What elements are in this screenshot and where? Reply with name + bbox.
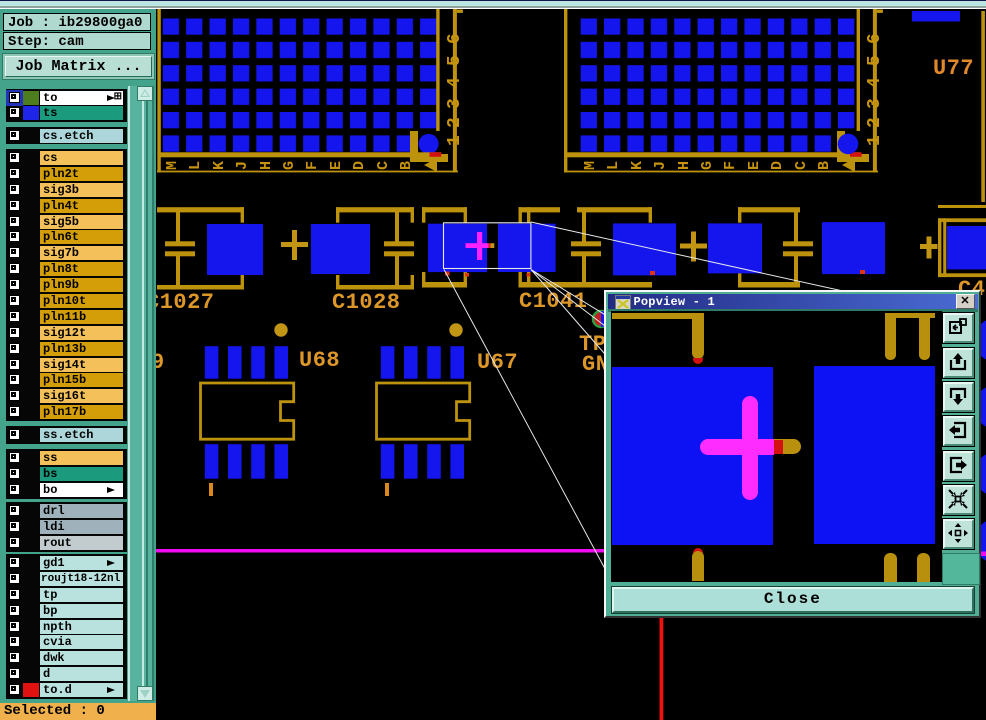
svg-text:5: 5 xyxy=(865,55,885,66)
svg-text:C: C xyxy=(793,161,810,170)
svg-text:H: H xyxy=(676,161,693,170)
svg-text:G: G xyxy=(699,161,716,170)
svg-text:3: 3 xyxy=(865,98,885,109)
svg-text:K: K xyxy=(211,161,228,170)
svg-text:U67: U67 xyxy=(477,350,518,375)
svg-text:L: L xyxy=(605,161,622,170)
svg-text:M: M xyxy=(582,161,599,170)
svg-text:2: 2 xyxy=(865,117,885,128)
svg-text:5: 5 xyxy=(445,55,465,66)
svg-text:M: M xyxy=(164,161,181,170)
svg-text:C1027: C1027 xyxy=(146,290,215,315)
svg-text:J: J xyxy=(652,161,669,170)
svg-text:U68: U68 xyxy=(299,348,340,373)
svg-text:6: 6 xyxy=(865,33,885,44)
svg-text:K: K xyxy=(629,161,646,170)
svg-text:G: G xyxy=(281,161,298,170)
svg-text:C1041: C1041 xyxy=(519,289,588,314)
svg-text:C1028: C1028 xyxy=(332,290,401,315)
svg-text:D: D xyxy=(351,161,368,170)
svg-text:F: F xyxy=(304,161,321,170)
svg-text:B: B xyxy=(398,161,415,170)
svg-text:L: L xyxy=(187,161,204,170)
svg-text:1: 1 xyxy=(865,135,885,146)
svg-text:J: J xyxy=(234,161,251,170)
svg-text:E: E xyxy=(328,161,345,170)
svg-text:1: 1 xyxy=(445,135,465,146)
svg-text:E: E xyxy=(746,161,763,170)
svg-text:2: 2 xyxy=(445,117,465,128)
svg-text:4: 4 xyxy=(445,77,465,88)
svg-text:D: D xyxy=(769,161,786,170)
svg-text:B: B xyxy=(816,161,833,170)
svg-text:6: 6 xyxy=(445,33,465,44)
svg-text:3: 3 xyxy=(445,98,465,109)
svg-text:4: 4 xyxy=(865,77,885,88)
svg-text:U77: U77 xyxy=(933,56,974,81)
svg-text:C: C xyxy=(375,161,392,170)
svg-text:H: H xyxy=(258,161,275,170)
svg-text:F: F xyxy=(722,161,739,170)
